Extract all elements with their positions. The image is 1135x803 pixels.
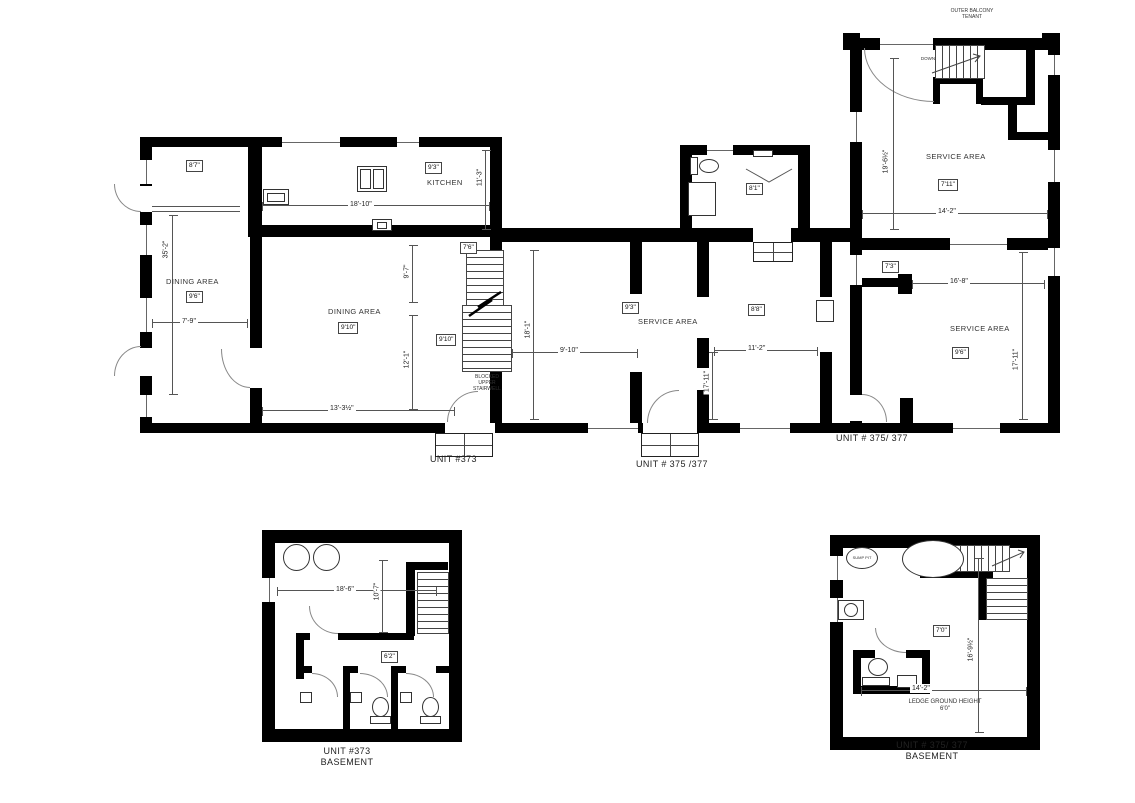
- dimension-box: 7'6": [460, 242, 477, 254]
- dimension-box: 8'8": [748, 304, 765, 316]
- stair-opening: [753, 228, 791, 242]
- door-arc: [647, 390, 679, 423]
- dimension-line: [712, 352, 713, 420]
- door-arc: [312, 673, 338, 697]
- floor-plan-canvas: 35'-2" 7'-9" 18'-10" 11'-3" 13'-3½" 9'-7…: [0, 0, 1135, 803]
- wall: [406, 562, 448, 570]
- wall: [490, 137, 502, 237]
- wall: [343, 666, 350, 729]
- shower-stall: [688, 182, 716, 216]
- door-arc: [447, 391, 478, 422]
- toilet-tank: [370, 716, 391, 724]
- window: [1048, 55, 1060, 75]
- dimension-line: [485, 150, 486, 230]
- door-arc: [862, 394, 887, 422]
- dimension-label: 17'-11": [1012, 338, 1021, 382]
- refrigerator: [263, 189, 289, 205]
- dimension-label: 9'-7": [403, 250, 412, 294]
- window: [140, 298, 152, 332]
- window: [707, 145, 733, 155]
- stairs: [417, 572, 449, 634]
- dimension-label: 16'-8": [948, 277, 970, 286]
- toilet-bowl: [868, 658, 888, 676]
- room-label-service-bot: SERVICE AREA: [950, 324, 1010, 333]
- dimension-line: [262, 205, 490, 206]
- dimension-box: 9'3": [425, 162, 442, 174]
- sink-basin: [373, 169, 384, 189]
- wall: [798, 145, 810, 238]
- down-label: DOWN: [916, 56, 940, 62]
- window: [850, 255, 862, 285]
- dimension-line: [382, 560, 383, 633]
- stair-break-symbol: [466, 290, 504, 318]
- door-opening: [850, 395, 862, 421]
- dimension-line: [912, 283, 1045, 284]
- wall: [398, 666, 406, 673]
- wall: [630, 372, 642, 423]
- wall-sink: [400, 692, 412, 703]
- dimension-line: [412, 315, 413, 410]
- dimension-label: 18'-6": [334, 585, 356, 594]
- dimension-label: 19'-6½": [882, 140, 891, 184]
- toilet-tank: [420, 716, 441, 724]
- pass-through: [816, 300, 834, 322]
- unit-label-373-basement: UNIT #373 BASEMENT: [297, 746, 397, 768]
- dimension-label: 14'-2": [910, 684, 932, 693]
- dimension-label: 18'-1": [524, 308, 533, 352]
- dimension-label: 13'-3½": [328, 404, 356, 413]
- wall: [250, 388, 262, 423]
- wall: [350, 666, 358, 673]
- dimension-label: 11'-2": [746, 344, 767, 353]
- wall: [406, 562, 415, 636]
- window: [950, 238, 1007, 250]
- wall: [338, 633, 414, 640]
- window: [588, 423, 638, 433]
- unit-label-375-basement: UNIT # 375/ 377 BASEMENT: [872, 740, 992, 762]
- wall-sink: [300, 692, 312, 703]
- laundry-tub: [283, 544, 310, 571]
- dimension-label: 7'-9": [180, 317, 198, 326]
- door-arc: [875, 628, 906, 653]
- toilet-bowl: [372, 697, 389, 717]
- lavatory-counter: [862, 677, 890, 686]
- room-label-service-top: SERVICE AREA: [926, 152, 986, 161]
- wall: [449, 530, 462, 742]
- wall: [898, 274, 912, 294]
- wall: [1008, 105, 1017, 135]
- dimension-box: 7'0": [933, 625, 950, 637]
- room-label-kitchen: KITCHEN: [427, 178, 463, 187]
- dimension-line: [172, 215, 173, 395]
- dimension-box: 8'1": [746, 183, 763, 195]
- entry-steps: [641, 433, 699, 457]
- wall: [391, 666, 398, 729]
- wall: [697, 242, 709, 297]
- wall: [1008, 132, 1060, 140]
- water-heater-dial: [844, 603, 858, 617]
- room-label-dining-1: DINING AREA: [166, 277, 219, 286]
- unit-label-375-right: UNIT # 375/ 377: [836, 433, 908, 443]
- wall: [820, 242, 832, 297]
- kitchen-sink: [357, 166, 387, 192]
- wall: [630, 242, 642, 294]
- wall: [680, 145, 810, 155]
- dimension-box: 9'10": [338, 322, 358, 334]
- wall-sink: [350, 692, 362, 703]
- unit-label-373: UNIT #373: [430, 454, 477, 464]
- toilet-bowl: [422, 697, 439, 717]
- laundry-tub: [313, 544, 340, 571]
- window: [262, 578, 275, 602]
- dimension-label: 17'-11": [703, 360, 712, 404]
- wall: [304, 666, 312, 673]
- window: [830, 556, 843, 580]
- window: [397, 137, 419, 147]
- door-opening: [445, 423, 495, 433]
- wall: [933, 77, 940, 104]
- dimension-box: 9'6": [186, 291, 203, 303]
- door-arc: [309, 606, 338, 634]
- wall: [850, 38, 862, 433]
- door-arc: [360, 673, 388, 697]
- dimension-box: 9'6": [952, 347, 969, 359]
- room-label-service-mid: SERVICE AREA: [638, 317, 698, 326]
- dimension-box: 8'7": [186, 160, 203, 172]
- door-opening: [643, 423, 697, 433]
- dimension-label: 35'-2": [162, 228, 171, 272]
- water-heater: [838, 600, 864, 620]
- dimension-label: 12'-1": [403, 338, 412, 382]
- window: [140, 225, 152, 255]
- window: [1048, 150, 1060, 182]
- closet-doors: [745, 168, 793, 184]
- stair-direction-arrow: [928, 46, 988, 78]
- wall: [262, 530, 462, 543]
- dimension-line: [152, 322, 248, 323]
- sink-basin: [360, 169, 371, 189]
- window: [953, 423, 1000, 433]
- ledge-note: LEDGE GROUND HEIGHT 6'0": [895, 699, 995, 713]
- stove-burner: [377, 222, 387, 229]
- dimension-line: [262, 410, 455, 411]
- sump-pit-label: SUMP PIT: [848, 555, 876, 561]
- door-opening: [140, 348, 152, 376]
- refrigerator-door: [267, 193, 285, 202]
- balcony-note: OUTER BALCONY TENANT: [937, 8, 1007, 20]
- wall: [436, 666, 449, 673]
- wall: [296, 633, 304, 679]
- dimension-line: [412, 245, 413, 303]
- room-label-dining-2: DINING AREA: [328, 307, 381, 316]
- window: [140, 160, 152, 184]
- stairs: [986, 578, 1028, 620]
- toilet-tank: [690, 157, 698, 175]
- door-arc: [221, 349, 250, 388]
- stove: [372, 219, 392, 231]
- oil-tank: [902, 540, 964, 578]
- door-arc: [114, 346, 141, 376]
- wall: [262, 530, 275, 742]
- wall: [248, 137, 262, 237]
- dimension-label: 11'-3": [476, 156, 485, 200]
- window: [1048, 248, 1060, 276]
- wall: [262, 729, 462, 742]
- wall: [1026, 44, 1035, 100]
- toilet-bowl: [699, 159, 719, 173]
- unit-label-375-mid: UNIT # 375 /377: [636, 459, 708, 469]
- window: [140, 395, 152, 417]
- door-opening: [140, 186, 152, 212]
- wall: [250, 237, 262, 348]
- bath-window: [753, 150, 773, 157]
- wall: [979, 578, 986, 620]
- door-arc: [114, 184, 141, 212]
- dimension-label: 10'-7": [373, 570, 382, 614]
- wall: [820, 352, 832, 433]
- dimension-box: 9'10": [436, 334, 456, 346]
- dimension-box: 9'3": [622, 302, 639, 314]
- dimension-label: 9'-10": [558, 346, 580, 355]
- stair-direction-arrow: [990, 546, 1030, 570]
- window: [740, 423, 790, 433]
- dimension-line: [1022, 252, 1023, 420]
- dimension-label: 14'-2": [936, 207, 958, 216]
- stairwell-note: BLOCKED UPPER STAIRWELL: [457, 374, 517, 392]
- dimension-box: 6'2": [381, 651, 398, 663]
- wall: [981, 97, 1035, 105]
- dimension-label: 16'-9½": [967, 628, 976, 672]
- dimension-box: 7'11": [938, 179, 958, 191]
- dimension-line: [893, 58, 894, 230]
- window: [282, 137, 340, 147]
- window: [850, 112, 862, 142]
- interior-steps: [753, 242, 793, 262]
- dimension-box: 7'3": [882, 261, 899, 273]
- dimension-line: [277, 590, 437, 591]
- dimension-line: [533, 250, 534, 420]
- wall: [900, 398, 913, 423]
- wall: [1048, 38, 1060, 433]
- dimension-line: [861, 690, 1027, 691]
- counter: [152, 206, 240, 212]
- dimension-label: 18'-10": [348, 200, 374, 209]
